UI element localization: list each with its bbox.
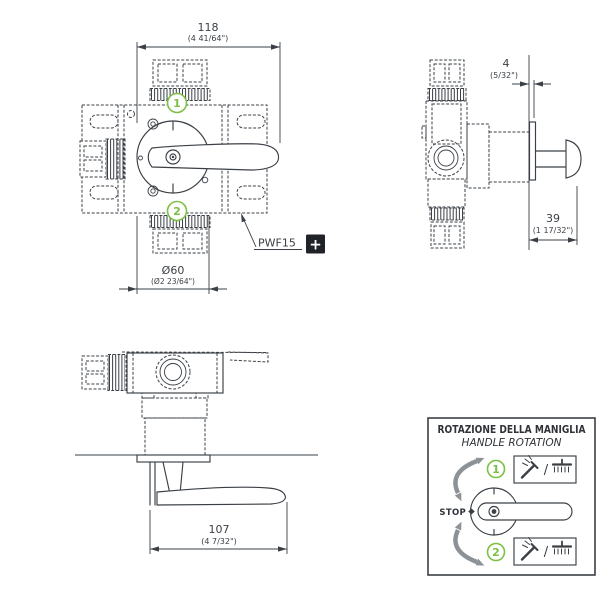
side-port <box>428 140 464 176</box>
bracket-slot <box>237 115 265 128</box>
escutcheon-top <box>137 455 210 462</box>
cartridge-housing <box>467 124 529 188</box>
plus-icon: + <box>309 236 322 254</box>
slash-separator: / <box>544 463 549 478</box>
top-left-fitting <box>82 355 126 391</box>
part-code-label: PWF15 <box>258 237 296 250</box>
drawing-page: 1 2 118 (4 41/64") Ø60 (Ø2 23/64") <box>0 0 607 596</box>
bottom-fitting <box>150 216 210 254</box>
outlet-2-number: 2 <box>173 205 181 218</box>
dim-handle-mm: 107 <box>209 523 230 536</box>
dimension-handle-107: 107 (4 7/32") <box>150 502 287 554</box>
position-1-number: 1 <box>492 463 500 476</box>
screw-hole <box>128 111 135 118</box>
bracket-slot <box>90 115 118 128</box>
escutcheon-side <box>530 122 536 180</box>
side-top-fitting <box>428 60 466 101</box>
outlet-1-number: 1 <box>173 97 181 110</box>
side-bottom-fitting <box>428 179 465 248</box>
lever-handle-top <box>150 462 286 505</box>
lever-handle-side <box>536 140 582 178</box>
dim-proj-mm: 39 <box>546 212 560 225</box>
lever-handle-front <box>148 144 278 170</box>
dim-dia-mm: Ø60 <box>162 264 185 277</box>
dim-gap-in: (5/32") <box>490 71 518 80</box>
top-valve-body <box>127 353 223 393</box>
bracket-slot <box>90 186 118 199</box>
dim-gap-mm: 4 <box>503 57 510 70</box>
stop-label: STOP <box>439 508 466 518</box>
dim-dia-in: (Ø2 23/64") <box>151 277 195 286</box>
position-2-number: 2 <box>492 546 500 559</box>
rotation-box: ROTAZIONE DELLA MANIGLIA HANDLE ROTATION… <box>428 418 595 575</box>
dimension-projection-39: 39 (1 17/32") <box>529 186 577 245</box>
part-callout: PWF15 + <box>241 213 325 254</box>
bracket-wing <box>228 352 268 362</box>
dim-width-in: (4 41/64") <box>188 34 229 43</box>
rotation-title-en: HANDLE ROTATION <box>462 437 562 449</box>
top-view: 107 (4 7/32") <box>75 352 318 554</box>
rotation-title-it: ROTAZIONE DELLA MANIGLIA <box>438 424 587 436</box>
technical-drawing-canvas: 1 2 118 (4 41/64") Ø60 (Ø2 23/64") <box>0 0 607 596</box>
side-view: 4 (5/32") 39 (1 17/32") <box>422 55 581 250</box>
bracket-slot <box>237 186 265 199</box>
side-valve-body <box>422 101 467 179</box>
slash-separator: / <box>544 545 549 560</box>
dim-handle-in: (4 7/32") <box>201 537 237 546</box>
dim-width-mm: 118 <box>198 21 219 34</box>
front-view: 1 2 118 (4 41/64") Ø60 (Ø2 23/64") <box>80 21 325 294</box>
bracket-edge <box>122 352 268 353</box>
cartridge-sleeve <box>142 393 208 455</box>
dimension-gap-4: 4 (5/32") <box>490 57 551 87</box>
dim-proj-in: (1 17/32") <box>533 226 574 235</box>
